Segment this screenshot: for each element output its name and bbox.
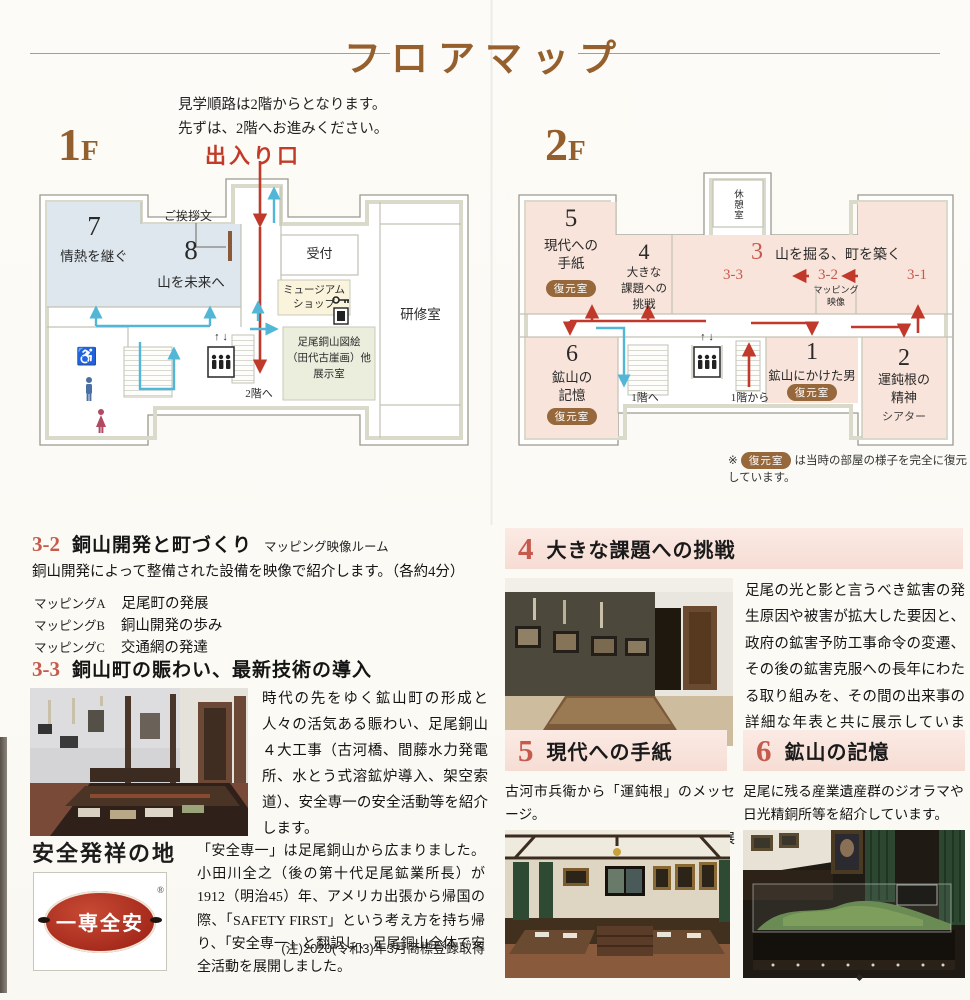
room3-title: 3 山を掘る、町を築く — [706, 239, 946, 266]
safety-section-body: 「安全専一」は足尾銅山から広まりました。小田川全之（後の第十代足尾鉱業所長）が1… — [197, 840, 485, 979]
to-1f-label: 1階へ — [622, 389, 668, 405]
to-2f-label: 2階へ — [228, 385, 290, 401]
safety-section-title: 安全発祥の地 — [32, 836, 176, 868]
section-3-3-header: 3-3 銅山町の賑わい、最新技術の導入 — [32, 655, 372, 682]
room1-number: 1 — [766, 339, 858, 366]
floor1-plan: 7 情熱を継ぐ 8 山を未来へ ご挨拶文 受付 ミュージアムショップ 研修室 足… — [28, 135, 488, 457]
brochure-page: { "header": { "title": "フロアマップ", "intro1… — [0, 0, 970, 1000]
room3-sub-3-3: 3-3 — [712, 267, 754, 284]
room4-number: 4 — [616, 239, 672, 265]
room2-name: 運鈍根の精神 — [862, 371, 946, 406]
room4-name: 大きな課題への挑戦 — [612, 265, 676, 313]
mapping-b-row: マッピングB 銅山開発の歩み — [34, 614, 222, 635]
room2-number: 2 — [862, 345, 946, 372]
room7-number: 7 — [56, 211, 132, 242]
section-3-2-body: 銅山開発によって整備された設備を映像で紹介します。（各約4分） — [32, 560, 484, 585]
registered-mark: ® — [157, 885, 164, 895]
section-4-banner: 4 大きな課題への挑戦 — [505, 528, 963, 569]
rest-room-label: 休憩室 — [730, 185, 744, 225]
floor2-stairs-left — [628, 345, 668, 395]
room3-sub-3-2: 3-2 — [812, 267, 844, 284]
room5-name: 現代への手紙 — [526, 237, 616, 273]
section-3-2-header: 3-2 銅山開発と町づくり マッピング映像ルーム — [32, 530, 389, 557]
exhibit-room-label: 足尾銅山図絵 （田代古崖画）他 展示室 — [283, 335, 375, 382]
exhibit-photo-6 — [743, 830, 965, 978]
reception-label: 受付 — [281, 243, 358, 262]
room8-number: 8 — [153, 235, 229, 266]
anzen-senichi-logo: 一専全安 ® — [33, 872, 167, 971]
trademark-note: (注)2020(令和3)年3月商標登録取得 — [197, 938, 485, 957]
room1-name: 鉱山にかけた男 — [762, 365, 862, 384]
scan-edge-artifact — [0, 737, 7, 993]
logo-oval: 一専全安 ® — [44, 891, 156, 953]
room6-number: 6 — [526, 341, 618, 368]
elevator-icon — [694, 347, 720, 377]
mapping-a-row: マッピングA 足尾町の発展 — [34, 592, 209, 613]
mapping-c-row: マッピングC 交通網の発達 — [34, 636, 208, 657]
restore-room-note: ※ 復元室 は当時の部屋の様子を完全に復元しています。 — [728, 452, 970, 485]
training-room-label: 研修室 — [380, 303, 461, 323]
elevator-direction-arrows: ↑ ↓ — [690, 331, 724, 343]
room1-restore-badge: 復元室 — [780, 383, 844, 401]
page-fold-crease — [490, 0, 493, 525]
room7-name: 情熱を継ぐ — [42, 245, 146, 265]
exhibit-photo-5 — [505, 830, 730, 978]
room2-theater-label: シアター — [862, 408, 946, 424]
wheelchair-icon: ♿ — [74, 347, 100, 367]
floor1-plan-drawing — [28, 135, 488, 457]
section-3-3-body: 時代の先をゆく鉱山町の形成と人々の活気ある賑わい、足尾銅山４大工事（古河橋、間藤… — [262, 686, 488, 843]
restore-badge-sample: 復元室 — [741, 452, 792, 469]
exhibit-photo-3-3 — [30, 688, 248, 836]
visit-route-line1: 見学順路は2階からとなります。 — [178, 94, 388, 118]
floor2-plan: 休憩室 5 現代への手紙 復元室 4 大きな課題への挑戦 3 山を掘る、町を築く… — [506, 135, 966, 457]
room8-name: 山を未来へ — [136, 271, 246, 291]
room6-name: 鉱山の記憶 — [526, 369, 618, 405]
section-6-body: 足尾に残る産業遺産群のジオラマや 日光精銅所等を紹介しています。 — [743, 780, 968, 827]
from-1f-label: 1階から — [718, 389, 782, 405]
greeting-label: ご挨拶文 — [156, 207, 220, 224]
elevator-direction-arrows: ↑ ↓ — [204, 331, 238, 343]
page-title: フロアマップ — [0, 28, 970, 82]
room5-restore-badge: 復元室 — [539, 279, 603, 297]
museum-shop-label: ミュージアムショップ — [276, 284, 352, 311]
section-5-banner: 5 現代への手紙 — [505, 730, 727, 771]
logo-text: 一専全安 — [56, 907, 144, 936]
room6-restore-badge: 復元室 — [540, 407, 604, 425]
section-6-banner: 6 鉱山の記憶 — [743, 730, 965, 771]
mapping-video-label: マッピング映像 — [812, 285, 860, 308]
exhibit-photo-4 — [505, 578, 733, 746]
room5-number: 5 — [526, 205, 616, 233]
elevator-icon — [208, 347, 234, 377]
room3-sub-3-1: 3-1 — [896, 267, 938, 284]
